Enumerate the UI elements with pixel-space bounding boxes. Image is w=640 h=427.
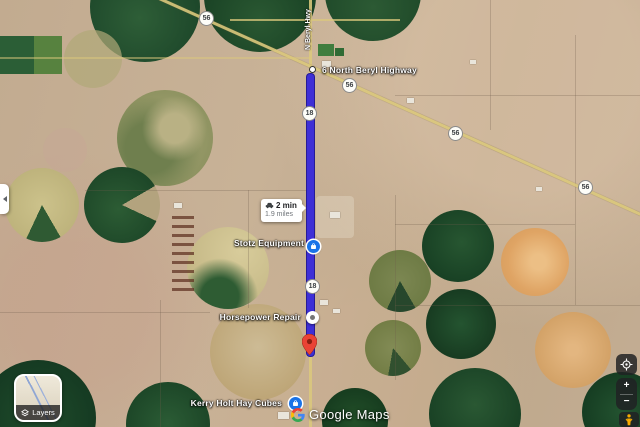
crop-circle bbox=[43, 128, 87, 172]
road-crossroad bbox=[0, 57, 310, 59]
poi-icon-stotz[interactable] bbox=[307, 240, 320, 253]
crop-circle bbox=[422, 210, 494, 282]
my-location-icon bbox=[620, 358, 633, 371]
poi-label-horsepower[interactable]: Horsepower Repair bbox=[220, 312, 301, 322]
poi-label-kerry[interactable]: Kerry Holt Hay Cubes bbox=[191, 398, 282, 408]
layers-icon bbox=[21, 409, 29, 417]
feedlot bbox=[172, 216, 194, 292]
route-origin-label: 6 North Beryl Highway bbox=[322, 65, 417, 75]
google-g-logo-icon bbox=[291, 408, 305, 422]
crop-circle bbox=[535, 312, 611, 388]
route-duration: 2 min bbox=[276, 201, 297, 210]
route-shield-56: 56 bbox=[578, 180, 593, 195]
destination-pin[interactable] bbox=[302, 334, 317, 355]
route-shield-56: 56 bbox=[342, 78, 357, 93]
crop-circle bbox=[369, 250, 431, 312]
pegman-icon bbox=[625, 414, 633, 426]
route-shield-56: 56 bbox=[199, 11, 214, 26]
shopping-bag-icon bbox=[310, 243, 317, 250]
layers-button[interactable]: Layers bbox=[14, 374, 62, 422]
route-shield-56: 56 bbox=[448, 126, 463, 141]
zoom-in-button[interactable]: + bbox=[616, 378, 637, 394]
route-shield-18: 18 bbox=[302, 106, 317, 121]
crop-circle bbox=[5, 168, 79, 242]
field bbox=[318, 44, 334, 56]
field bbox=[335, 48, 344, 56]
chevron-left-icon bbox=[3, 196, 7, 202]
shopping-bag-icon bbox=[292, 400, 299, 407]
crop-circle bbox=[365, 320, 421, 376]
my-location-button[interactable] bbox=[616, 354, 637, 375]
layers-label: Layers bbox=[32, 408, 55, 417]
map-canvas[interactable]: 6 North Beryl Highway N Beryl Hwy 18 18 … bbox=[0, 0, 640, 427]
zoom-controls: + − bbox=[616, 378, 637, 410]
route-duration-callout[interactable]: 2 min 1.9 miles bbox=[261, 199, 302, 222]
field bbox=[0, 36, 62, 74]
route-distance: 1.9 miles bbox=[265, 211, 297, 219]
route-origin-dot[interactable] bbox=[309, 66, 316, 73]
watermark-text: Google Maps bbox=[309, 407, 390, 422]
generic-poi-icon bbox=[310, 315, 315, 320]
collapse-panel-button[interactable] bbox=[0, 184, 9, 214]
route-shield-18: 18 bbox=[305, 279, 320, 294]
crop-circle bbox=[429, 368, 521, 427]
poi-icon-horsepower[interactable] bbox=[306, 311, 319, 324]
road-crossroad bbox=[230, 19, 400, 21]
crop-circle bbox=[501, 228, 569, 296]
pegman-button[interactable] bbox=[619, 412, 639, 427]
crop-circle bbox=[64, 30, 122, 88]
crop-circle bbox=[84, 167, 160, 243]
road-label-n-beryl-hwy: N Beryl Hwy bbox=[303, 4, 314, 50]
zoom-out-button[interactable]: − bbox=[616, 395, 637, 411]
poi-label-stotz[interactable]: Stotz Equipment bbox=[234, 238, 304, 248]
crop-circle bbox=[426, 289, 496, 359]
google-maps-watermark: Google Maps bbox=[291, 407, 390, 422]
car-icon bbox=[265, 202, 274, 209]
